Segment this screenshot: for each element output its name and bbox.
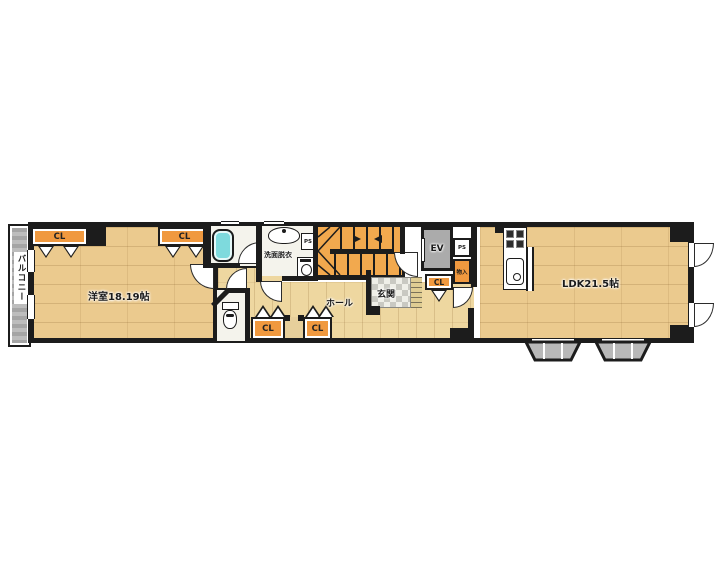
wall-pillar-hall-ldk bbox=[450, 328, 474, 341]
window-balcony-1 bbox=[27, 250, 35, 272]
closet-1-label: CL bbox=[54, 232, 66, 242]
entrance-step bbox=[411, 277, 422, 308]
elevator: EV bbox=[421, 227, 453, 271]
stove-icon bbox=[506, 230, 524, 250]
closet-1-fold-door-icon bbox=[38, 246, 54, 258]
closet-ev: CL bbox=[425, 274, 453, 290]
window-balcony-2 bbox=[27, 295, 35, 319]
wall-washroom-right bbox=[313, 222, 318, 280]
closet-4-label: CL bbox=[312, 324, 324, 334]
washroom-label: 洗面脱衣 bbox=[264, 250, 292, 260]
elevator-label: EV bbox=[430, 244, 443, 254]
floorplan-canvas: バルコニー 洋室18.19帖 CL CL 洗面脱衣 PS bbox=[0, 0, 720, 576]
closet-2-fold-door-icon bbox=[165, 246, 181, 258]
washing-machine-pan-icon bbox=[297, 257, 314, 277]
storage-label: 物入 bbox=[456, 268, 467, 276]
bay-window-2 bbox=[594, 340, 652, 363]
wall-pillar-ldk-br bbox=[670, 325, 694, 343]
hall-label: ホール bbox=[326, 296, 353, 309]
closet-3: CL bbox=[251, 317, 285, 340]
stairs-arrow-right-icon bbox=[353, 235, 361, 243]
pipe-space-1-label: PS bbox=[304, 239, 312, 245]
bay-window-1 bbox=[524, 340, 582, 363]
storage: 物入 bbox=[453, 259, 471, 284]
closet-3-fold-door-icon bbox=[255, 305, 271, 317]
closet-1-fold-door-icon bbox=[63, 246, 79, 258]
closet-ev-label: CL bbox=[434, 278, 444, 287]
kitchen-sink-icon bbox=[506, 258, 524, 285]
ldk-label: LDK21.5帖 bbox=[562, 275, 619, 290]
ldk-exterior-door-2 bbox=[694, 303, 714, 327]
closet-1: CL bbox=[31, 227, 88, 246]
elevator-door-icon bbox=[421, 238, 425, 262]
entrance-label: 玄関 bbox=[377, 287, 395, 300]
wall-pillar-closet-divider bbox=[88, 227, 106, 246]
wall-pillar-ldk-tr bbox=[670, 222, 694, 242]
wall-toilet-top bbox=[228, 288, 250, 293]
closet-2-label: CL bbox=[179, 232, 191, 242]
bathtub-icon bbox=[212, 229, 234, 262]
stairs-arrow-left-icon bbox=[374, 235, 382, 243]
western-room-label: 洋室18.19帖 bbox=[88, 288, 150, 303]
closet-4: CL bbox=[303, 317, 332, 340]
wall-bath-left bbox=[203, 222, 211, 268]
stairs-treads-upper bbox=[340, 227, 402, 249]
wall-washroom-bottom bbox=[282, 276, 318, 281]
closet-ev-fold-door-icon bbox=[431, 290, 447, 302]
pipe-space-2-label: PS bbox=[458, 245, 466, 251]
toilet-icon bbox=[221, 302, 240, 330]
ldk-exterior-door-1 bbox=[694, 243, 714, 267]
washbasin-faucet-icon bbox=[282, 229, 286, 233]
kitchen-counter bbox=[526, 247, 534, 291]
wall-bath-wash-divider bbox=[256, 222, 262, 282]
wall-stairs-right bbox=[400, 222, 405, 254]
stairs-winder-lines bbox=[318, 227, 344, 275]
balcony-label: バルコニー bbox=[14, 252, 28, 304]
wall-psblock-right bbox=[471, 222, 477, 287]
closet-gap-cap-left bbox=[284, 315, 290, 321]
stairs bbox=[313, 222, 405, 280]
closet-3-label: CL bbox=[262, 324, 274, 334]
wall-toilet-right bbox=[245, 288, 250, 343]
wall-pillar-entrance bbox=[366, 306, 380, 315]
wall-bath-bottom bbox=[203, 263, 240, 268]
wall-hall-ldk-lower bbox=[468, 308, 474, 330]
pipe-space-2: PS bbox=[453, 238, 471, 257]
closet-2-fold-door-icon bbox=[188, 246, 204, 258]
